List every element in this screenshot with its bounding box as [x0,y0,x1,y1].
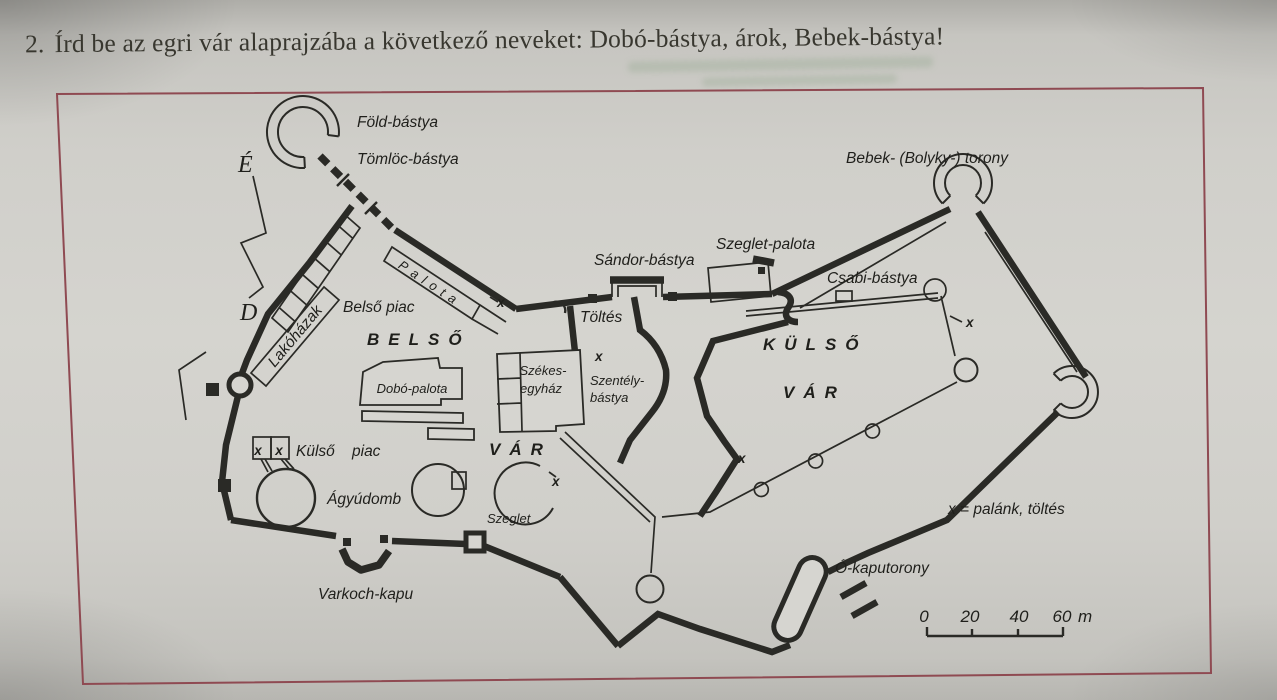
scale-60: 60 [1053,607,1072,626]
south-wall [231,520,560,577]
west-lower-wall [222,396,238,520]
label-szekesegyhaz-2: egyház [520,381,562,396]
label-csabi-bastya: Csabi-bástya [827,270,918,287]
x-mark: x [551,474,560,489]
label-belso: BELSŐ [367,330,471,349]
long-hall-building [362,411,463,423]
small-building [428,428,474,440]
scale-20: 20 [960,607,980,626]
se-wall [828,412,1058,572]
x-mark: x [274,443,283,458]
label-var-belso: VÁR [489,440,552,459]
label-toltes: Töltés [580,309,622,326]
scanned-textbook-page: { "header": { "number": "2.", "text": "Í… [0,0,1277,700]
fold-bastion-shape [267,96,339,168]
varkoch-gate [342,549,389,570]
inner-enclosure-top [746,293,938,316]
compass-south-label: D [239,300,257,326]
x-mark: x [965,315,974,330]
scale-0: 0 [919,607,929,626]
x-mark: x [253,443,262,458]
wall-ticks [337,174,377,214]
label-szekesegyhaz-1: Székes- [520,363,568,378]
label-varkoch-kapu: Varkoch-kapu [318,586,413,603]
scale-unit: m [1078,607,1092,626]
legend-palank: x = palánk, töltés [947,501,1065,518]
label-agyudomb: Ágyúdomb [326,491,401,508]
scale-bar: 0 20 40 60 m [919,607,1092,636]
x-mark: x [496,295,505,310]
label-fold-bastya: Föld-bástya [357,114,438,131]
small-round-tower [955,359,978,382]
x-mark: x [737,451,746,466]
east-wall [978,212,1086,377]
castle-plan-figure: É D x x x x x x x Föld-bástya Tömlöc-bás… [0,0,1277,700]
label-szentely-1: Szentély- [590,373,645,388]
label-sandor-bastya: Sándor-bástya [594,252,695,269]
label-bebek-torony: Bebek- (Bolyky-) torony [846,150,1009,167]
west-outwork [179,352,206,420]
compass-needle [241,176,266,298]
label-szeglet: Szeglet [487,511,532,526]
west-round-tower [229,374,251,396]
label-dobo-palota: Dobó-palota [377,381,448,396]
wall-block [206,383,219,396]
label-tomloc-bastya: Tömlöc-bástya [357,151,459,168]
south-outer-wall [618,614,790,652]
south-tip-wall [560,577,618,646]
wall-block [588,294,597,303]
scale-line [927,627,1063,636]
label-kulso: KÜLSŐ [763,335,868,354]
sandor-bastion-sides [612,283,662,297]
compass-north-label: É [237,152,253,178]
wall-block [668,292,677,301]
parapet-lines [800,222,1077,513]
gate-flank-walls [841,583,877,616]
scale-40: 40 [1010,607,1029,626]
ditch-corridor [560,432,655,573]
east-corner-tower-shape [1054,366,1098,418]
compass: É D [237,152,266,326]
x-mark: x [594,349,603,364]
o-kaputorony-tower [769,553,830,645]
label-var-kulso: VÁR [783,383,846,402]
gate-block [343,538,351,546]
label-szeglet-palota: Szeglet-palota [716,236,815,253]
wall-block [758,267,765,274]
inner-castle-walls [179,156,772,646]
szeglet-palota-wall [753,259,774,263]
wall-notch [836,291,852,301]
szeglet-corner-tower [466,533,484,551]
label-o-kaputorony: Ó-kaputorony [835,560,930,577]
wall-block [218,479,231,492]
label-szentely-2: bástya [590,390,628,405]
label-kulso-piac-2: piac [351,443,381,460]
corridor-round-tower [637,576,664,603]
label-belso-piac: Belső piac [343,299,415,316]
agyudomb-mound [257,469,315,527]
inner-enclosure-right [941,296,955,356]
label-kulso-piac-1: Külső [296,443,335,460]
gate-block [380,535,388,543]
